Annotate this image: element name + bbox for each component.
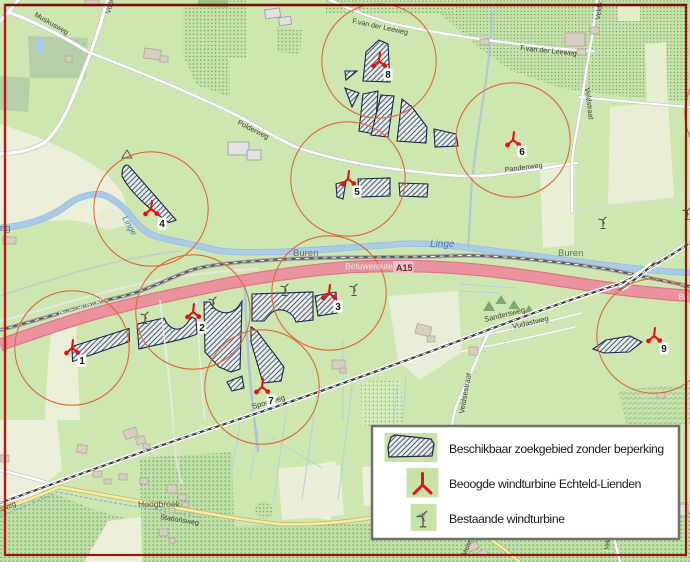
svg-text:Linge: Linge: [430, 239, 455, 250]
svg-text:Bestaande windturbine: Bestaande windturbine: [449, 512, 565, 526]
svg-text:Beoogde windturbine Echteld-Li: Beoogde windturbine Echteld-Lienden: [449, 477, 641, 491]
svg-text:Hoogbroek: Hoogbroek: [138, 499, 181, 509]
svg-text:3: 3: [335, 302, 341, 313]
svg-text:A15: A15: [396, 263, 413, 273]
svg-text:Beschikbaar zoekgebied zonder: Beschikbaar zoekgebied zonder beperking: [449, 442, 664, 456]
svg-text:4: 4: [159, 219, 165, 230]
svg-text:5: 5: [354, 187, 360, 198]
svg-text:Buren: Buren: [558, 248, 583, 259]
svg-text:2: 2: [199, 323, 205, 334]
svg-text:1: 1: [79, 356, 85, 367]
svg-text:Buren: Buren: [293, 248, 318, 259]
svg-text:7: 7: [268, 396, 274, 407]
svg-text:8: 8: [385, 70, 391, 81]
svg-text:6: 6: [519, 147, 525, 158]
svg-text:Be: Be: [678, 291, 690, 303]
svg-text:Betuweroute: Betuweroute: [345, 261, 393, 271]
svg-text:9: 9: [661, 344, 667, 355]
